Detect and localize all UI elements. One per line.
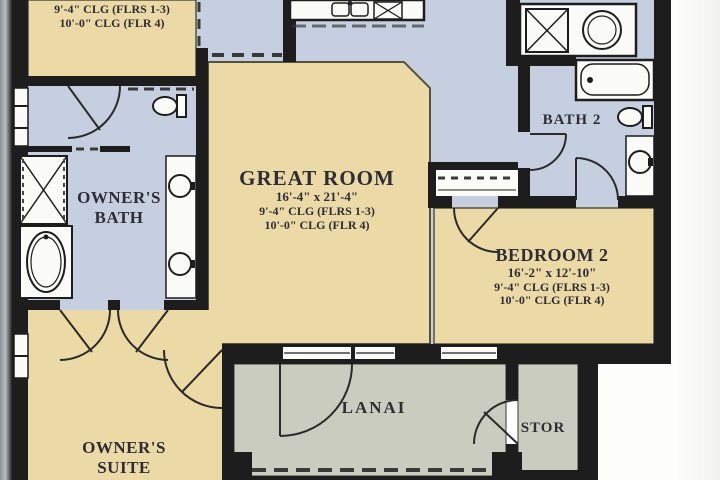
- great-room-label: GREAT ROOM 16'-4" x 21'-4" 9'-4" CLG (FL…: [239, 166, 395, 233]
- great-room-dimensions: 16'-4" x 21'-4": [239, 190, 395, 205]
- lanai-post-left: [222, 452, 252, 480]
- wall-stor-right: [578, 364, 598, 480]
- owners-bath-label: OWNER'S BATH: [77, 188, 161, 227]
- tub-faucet-icon: [44, 235, 49, 240]
- wall-suite-top-2: [108, 300, 120, 310]
- wall-exterior-right: [654, 0, 671, 354]
- left-wall-niche-icon: [14, 88, 28, 146]
- wall-closet-left: [428, 162, 436, 208]
- wall-closet-bottom-right: [498, 196, 518, 208]
- floor-plan: 12'-2" x 12'-8" 9'-4" CLG (FLRS 1-3) 10'…: [0, 0, 720, 480]
- vanity-sink2-icon: [169, 253, 191, 275]
- bath2-sink-faucet: [648, 158, 653, 166]
- retreat-label: 12'-2" x 12'-8" 9'-4" CLG (FLRS 1-3) 10'…: [54, 0, 170, 31]
- owners-suite-title-1: OWNER'S: [82, 438, 166, 458]
- wall-retreat-bottom: [28, 76, 196, 86]
- lanai-label: LANAI: [342, 398, 407, 418]
- retreat-clg1: 9'-4" CLG (FLRS 1-3): [54, 3, 170, 17]
- bedroom2-clg2: 10'-0" CLG (FLR 4): [494, 294, 610, 308]
- bedroom2-title: BEDROOM 2: [494, 245, 610, 266]
- bath2-toilet-icon: [618, 108, 642, 126]
- hall-closet: [436, 170, 518, 196]
- lanai-floor: [234, 364, 506, 476]
- stor-floor: [518, 364, 578, 472]
- owners-bath-title-2: BATH: [77, 208, 161, 228]
- bath2-toilet-tank: [643, 106, 652, 128]
- lanai-post-right: [492, 452, 522, 480]
- wall-bath2-left-lower: [518, 168, 530, 208]
- wc-toilet-icon: [153, 97, 177, 115]
- great-room-clg1: 9'-4" CLG (FLRS 1-3): [239, 205, 395, 219]
- laundry-sink-icon: [583, 11, 621, 49]
- great-room-title: GREAT ROOM: [239, 166, 395, 190]
- vanity-sink1-icon: [169, 175, 191, 197]
- bedroom2-dimensions: 16'-2" x 12'-10": [494, 266, 610, 281]
- owners-suite-title-2: SUITE: [82, 458, 166, 478]
- wall-suite-top-1: [28, 300, 60, 310]
- great-room-clg2: 10'-0" CLG (FLR 4): [239, 219, 395, 233]
- bath2-tub-faucet: [587, 77, 593, 83]
- wall-wc-divider-mid: [100, 146, 130, 152]
- wall-suite-top-3: [164, 300, 208, 310]
- kitchen-faucet-icon: [348, 1, 352, 5]
- wall-center-vertical: [196, 48, 208, 310]
- page-edge: [0, 0, 12, 480]
- retreat-clg2: 10'-0" CLG (FLR 4): [54, 17, 170, 31]
- laundry: [520, 4, 636, 56]
- wall-wc-divider-left: [28, 146, 72, 152]
- wall-bath2-bottom-right: [618, 196, 671, 208]
- sink2-faucet: [190, 260, 195, 268]
- bath2-sink-icon: [629, 151, 651, 173]
- wall-laundry-bottom: [506, 56, 576, 66]
- wall-stor-left-upper: [506, 364, 518, 400]
- wall-closet-top: [428, 162, 518, 170]
- owners-bath-title-1: OWNER'S: [77, 188, 161, 208]
- stor-label: STOR: [521, 420, 566, 437]
- bedroom2-clg1: 9'-4" CLG (FLRS 1-3): [494, 281, 610, 295]
- wc-toilet-tank: [177, 95, 186, 117]
- closet-fill: [436, 170, 518, 196]
- kitchen-sink2-icon: [351, 3, 368, 16]
- sink1-faucet: [190, 182, 195, 190]
- kitchen-sink-icon: [332, 3, 349, 16]
- bedroom2-label: BEDROOM 2 16'-2" x 12'-10" 9'-4" CLG (FL…: [494, 245, 610, 308]
- wall-bath2-left-upper: [518, 66, 530, 132]
- bath2-label: BATH 2: [543, 112, 602, 129]
- wall-lanai-bottom: [222, 476, 522, 480]
- owners-suite-label: OWNER'S SUITE: [82, 438, 166, 477]
- kitchen: [290, 0, 424, 20]
